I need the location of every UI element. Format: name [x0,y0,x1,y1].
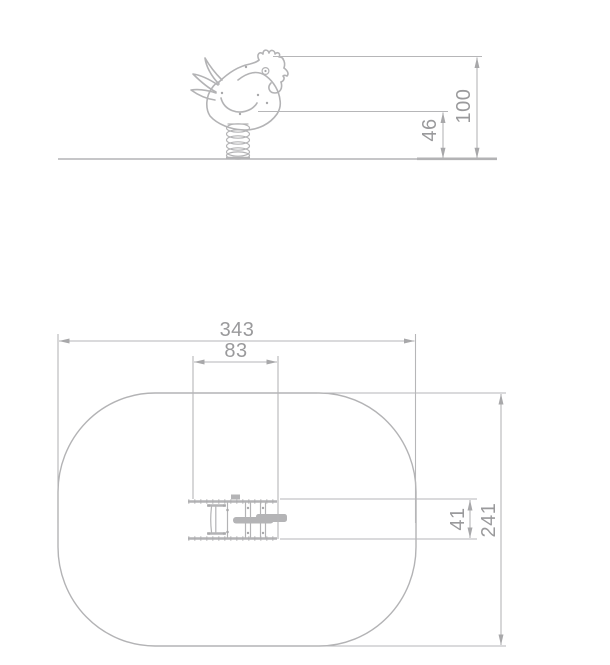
plan-view-dimensions [58,334,506,646]
dim-label-seat-height: 46 [420,118,440,141]
side-view-dimensions [258,57,482,159]
rooster-beak [281,68,288,82]
drawing-svg [0,0,610,665]
tail-feather [205,58,222,84]
rooster-figure [191,50,288,130]
handlebar [256,514,287,522]
dim-label-unit-length: 83 [224,341,247,361]
spring-base-top-view [207,504,226,535]
rooster-eye-pupil [264,70,266,72]
technical-drawing-sheet: 100 46 343 83 41 241 [0,0,610,665]
rooster-wing-line [221,98,257,112]
rooster-head [283,59,285,68]
center-post [226,503,229,537]
tail-feathers [191,58,222,100]
dim-label-unit-width: 41 [448,507,468,530]
plan-view [58,334,506,646]
rooster-comb [258,50,283,60]
tail-feather [191,90,216,100]
mounting-plate [231,495,240,500]
dim-label-total-height: 100 [454,89,474,124]
dim-label-zone-length: 343 [220,320,255,340]
side-elevation-view [58,50,497,159]
rooster-body-outline [207,73,280,130]
dim-label-zone-width: 241 [479,503,499,538]
rider-top-view [188,495,287,539]
